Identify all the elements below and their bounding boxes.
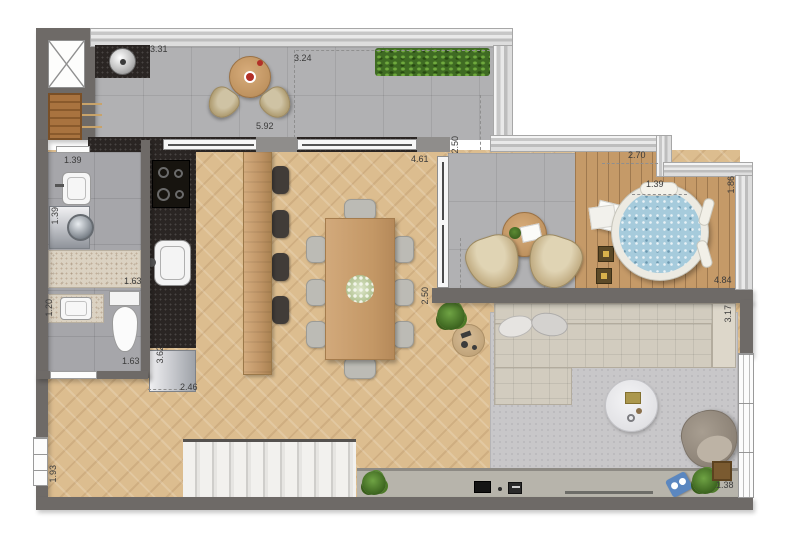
railing-deck-right	[735, 175, 753, 290]
media-device	[508, 482, 522, 494]
dim-hall-width: 2.46	[180, 382, 198, 392]
dining-chair-left-1	[306, 236, 327, 263]
wall-living-top	[432, 288, 753, 303]
dining-chair-bottom	[344, 357, 376, 379]
skewer-2	[82, 114, 102, 116]
dim-terrace-opening: 2.50	[450, 136, 460, 154]
wall-pier-terrace	[256, 137, 297, 152]
dim-line-opening-v	[480, 95, 481, 150]
skewer-3	[82, 126, 102, 128]
wall-bottom	[36, 497, 753, 510]
bath-door	[50, 371, 97, 379]
dining-chair-left-3	[306, 321, 327, 348]
toilet-tank	[109, 291, 140, 306]
sliding-door-glass	[168, 144, 254, 146]
dim-terrace-width: 5.92	[256, 121, 274, 131]
laundry-basin	[67, 177, 86, 200]
side-table-item-2	[461, 341, 468, 348]
dim-terrace-depth: 3.24	[294, 53, 312, 63]
floor-plant	[437, 302, 465, 330]
grill-knob	[120, 59, 126, 65]
dining-chair-right-3	[393, 321, 414, 348]
side-table-item-1	[460, 330, 471, 338]
burner-4	[175, 190, 184, 199]
console-plant-left	[362, 471, 386, 495]
glass-pane-upper	[442, 162, 444, 220]
burner-3	[157, 188, 170, 201]
side-table-item-3	[472, 345, 477, 350]
bar-stool-4	[272, 296, 289, 324]
hot-tub	[611, 183, 709, 281]
dim-console-width: 1.38	[716, 480, 734, 490]
dim-bath-vanity: 1.20	[44, 299, 54, 317]
dim-line-spa-h	[632, 194, 687, 195]
bath-basin	[65, 301, 87, 316]
table-item-1	[636, 408, 642, 414]
soundbar	[565, 491, 653, 494]
table-item-2	[627, 414, 635, 422]
kitchen-sink	[154, 240, 191, 286]
barbecue-grill	[109, 48, 136, 75]
dim-deck-top-width: 2.70	[628, 150, 646, 160]
dim-living-depth: 3.17	[723, 305, 733, 323]
dim-laundry-counter: 1.63	[124, 276, 142, 286]
dim-line-terrace-v	[294, 50, 295, 138]
sliding-door-side-terrace	[437, 156, 449, 288]
decor-circle-2	[678, 477, 687, 486]
railing-terrace-right	[493, 45, 513, 140]
dim-line-deck-h	[602, 163, 658, 164]
dim-laundry-sink: 1.39	[64, 155, 82, 165]
sink-basin	[160, 246, 185, 280]
laundry-sink	[62, 172, 91, 205]
cooktop	[152, 160, 190, 208]
burner-1	[158, 167, 169, 178]
burner-2	[174, 169, 183, 178]
dim-grill-width: 3.31	[150, 44, 168, 54]
dining-chair-right-2	[393, 279, 414, 306]
bath-sink	[60, 297, 92, 320]
grass-planter	[375, 48, 490, 76]
washer-drum	[67, 214, 94, 241]
window-living-right	[738, 353, 754, 498]
bar-stool-2	[272, 210, 289, 238]
dim-hall-depth: 1.93	[48, 465, 58, 483]
elevator	[48, 40, 85, 88]
dim-line-terrace-h	[296, 50, 490, 51]
dining-chair-left-2	[306, 279, 327, 306]
laundry-faucet	[55, 184, 64, 187]
table-flowers	[346, 275, 374, 303]
laundry-door	[56, 146, 90, 153]
dim-deck-right-depth: 1.86	[726, 176, 736, 194]
dim-bath-width: 1.63	[122, 356, 140, 366]
sliding-door-glass-2	[302, 144, 412, 146]
living-coffee-table	[605, 379, 658, 432]
kitchen-island	[243, 150, 272, 375]
dim-living-opening: 2.50	[420, 287, 430, 305]
lantern-candle-2	[601, 273, 607, 279]
elevator-x-icon	[49, 41, 84, 87]
window-left	[33, 437, 48, 486]
wood-crate-shelf	[48, 93, 82, 140]
gold-tray	[625, 392, 641, 404]
dim-dining-width: 4.61	[411, 154, 429, 164]
floor-plan: 3.31 3.24 5.92 2.50 4.61 2.70 1.39 1.86 …	[0, 0, 800, 548]
bar-stool-3	[272, 253, 289, 281]
tv-equipment	[474, 481, 491, 493]
dim-laundry-depth: 1.39	[50, 207, 60, 225]
dining-chair-right-1	[393, 236, 414, 263]
console-back-edge	[357, 468, 745, 471]
red-dot-decor	[257, 60, 263, 66]
lantern-candle-1	[603, 251, 609, 257]
sofa-chaise	[494, 367, 572, 405]
staircase	[183, 439, 356, 498]
deck-lantern-2	[596, 268, 612, 284]
dim-kitchen-run: 3.62	[155, 346, 165, 364]
wood-box-decor	[712, 461, 732, 481]
console-knob	[498, 487, 502, 491]
small-plant	[509, 227, 521, 239]
dim-spa-seat-width: 1.39	[646, 179, 664, 189]
decor-circle-1	[670, 481, 679, 490]
dim-deck-width: 4.84	[714, 275, 732, 285]
side-table	[452, 324, 485, 357]
dim-line-living-opening-v	[460, 238, 461, 288]
sliding-door-dining	[297, 139, 417, 150]
red-cup	[244, 71, 256, 83]
sliding-door-kitchen	[163, 139, 258, 150]
deck-lantern-1	[598, 246, 614, 262]
wall-laundry-right	[141, 140, 150, 378]
skewer-1	[82, 103, 102, 105]
glass-pane-lower	[442, 225, 444, 283]
wall-living-right	[740, 300, 753, 356]
hot-tub-water	[619, 191, 701, 273]
wall-pier-terrace-2	[417, 137, 450, 152]
device-slot	[512, 486, 520, 488]
bar-stool-1	[272, 166, 289, 194]
dim-line-hall-h	[148, 389, 182, 390]
